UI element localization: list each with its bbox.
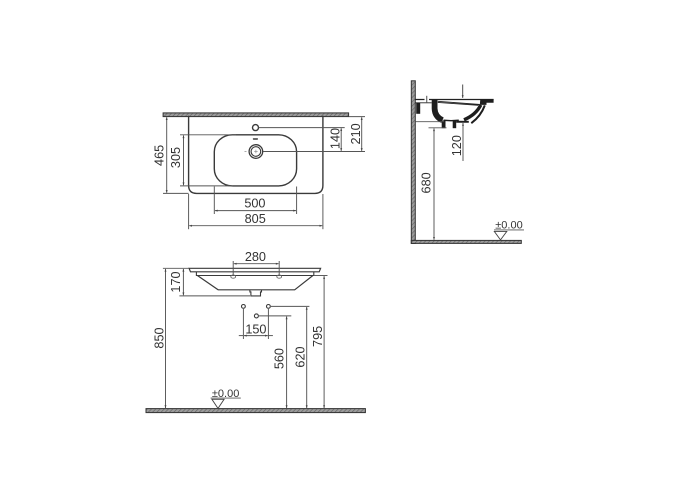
svg-text:805: 805 [245, 212, 266, 226]
svg-text:305: 305 [169, 147, 183, 168]
svg-text:680: 680 [420, 172, 434, 193]
svg-text:170: 170 [169, 271, 183, 292]
svg-text:210: 210 [349, 123, 363, 144]
svg-text:280: 280 [245, 250, 266, 264]
svg-text:150: 150 [245, 322, 266, 336]
svg-text:560: 560 [272, 348, 286, 369]
svg-text:120: 120 [450, 135, 464, 156]
svg-text:850: 850 [153, 327, 167, 348]
svg-text:465: 465 [153, 145, 167, 166]
svg-text:795: 795 [311, 326, 325, 347]
svg-text:500: 500 [244, 197, 265, 211]
svg-text:620: 620 [294, 346, 308, 367]
svg-text:140: 140 [328, 128, 342, 149]
